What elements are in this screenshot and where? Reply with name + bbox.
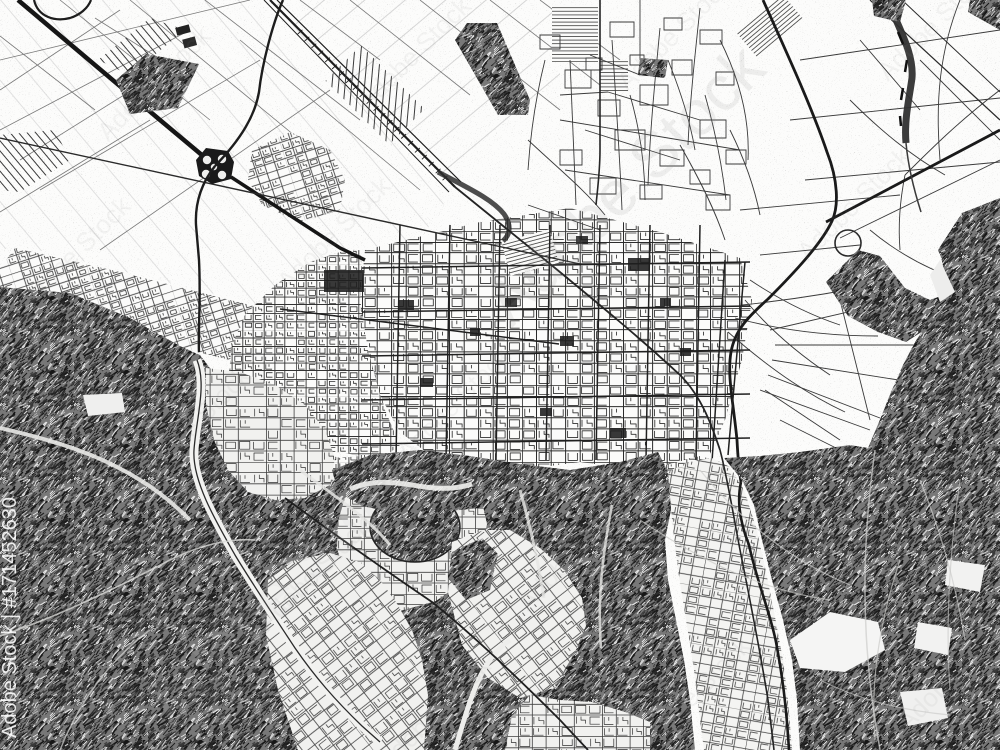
svg-text:Adobe Stock | #171452630: Adobe Stock | #171452630	[0, 497, 21, 738]
